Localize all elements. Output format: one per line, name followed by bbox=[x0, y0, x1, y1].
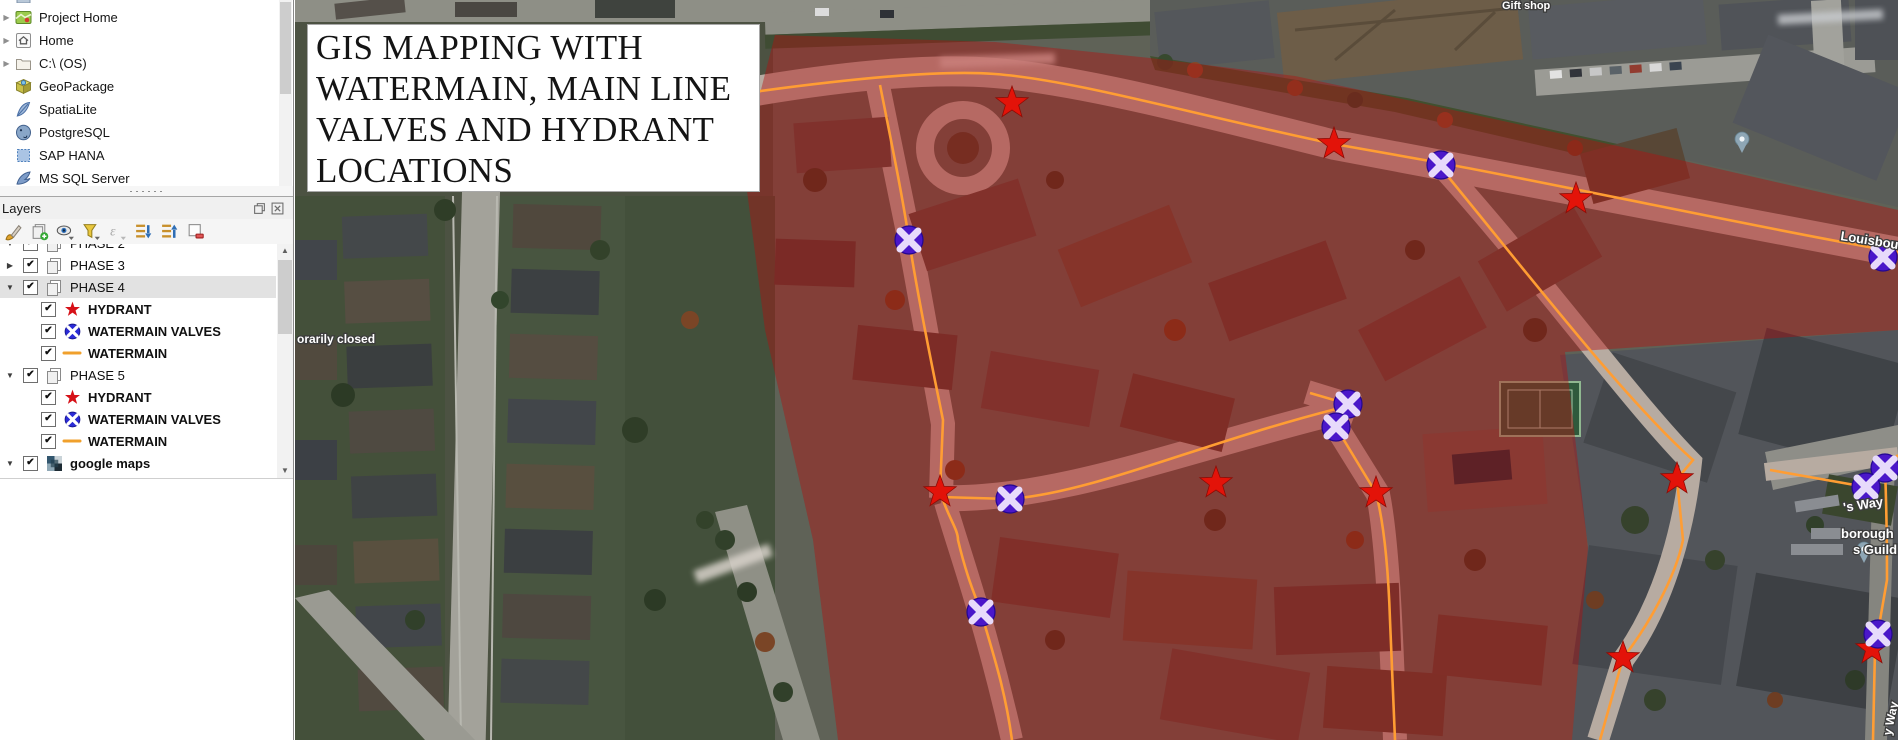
layer-label: WATERMAIN bbox=[88, 434, 167, 449]
float-panel-button[interactable] bbox=[253, 202, 266, 215]
layer-visibility-checkbox[interactable]: ✔ bbox=[23, 368, 38, 383]
street-label-s-guild: s Guild bbox=[1853, 542, 1897, 557]
panel-splitter-handle[interactable] bbox=[0, 186, 293, 196]
spatialite-icon bbox=[15, 101, 32, 118]
browser-item-home[interactable]: ▶Home bbox=[0, 29, 279, 52]
street-label-gift-shop: Gift shop bbox=[1502, 0, 1551, 12]
filter-legend-button[interactable] bbox=[80, 220, 103, 243]
layer-item-watermain[interactable]: ✔WATERMAIN bbox=[0, 342, 276, 364]
layer-label: google maps bbox=[70, 456, 150, 471]
layer-label: PHASE 2 bbox=[70, 244, 125, 251]
browser-item-label: SAP HANA bbox=[39, 148, 105, 163]
browser-panel: ▶Project Home▶Home▶C:\ (OS)GeoPackageSpa… bbox=[0, 0, 293, 196]
sap-hana-icon bbox=[15, 147, 32, 164]
layer-group-phase-4[interactable]: ▼✔PHASE 4 bbox=[0, 276, 276, 298]
browser-scrollbar-thumb[interactable] bbox=[280, 2, 291, 94]
browser-item-geopackage[interactable]: GeoPackage bbox=[0, 75, 279, 98]
hydrant-star-icon bbox=[61, 300, 83, 318]
layer-item-watermain-valves[interactable]: ✔WATERMAIN VALVES bbox=[0, 408, 276, 430]
qgis-window: ▶Project Home▶Home▶C:\ (OS)GeoPackageSpa… bbox=[0, 0, 1898, 740]
browser-item-label: Project Home bbox=[39, 10, 118, 25]
open-layer-styling-button[interactable] bbox=[2, 220, 25, 243]
tree-expander-icon[interactable]: ▼ bbox=[4, 371, 16, 380]
scroll-up-icon[interactable]: ▲ bbox=[277, 244, 293, 258]
layers-tree: ▼✔PHASE 2▶✔PHASE 3▼✔PHASE 4✔HYDRANT✔WATE… bbox=[0, 244, 276, 474]
layer-visibility-checkbox[interactable]: ✔ bbox=[41, 302, 56, 317]
browser-tree: ▶Project Home▶Home▶C:\ (OS)GeoPackageSpa… bbox=[0, 0, 279, 196]
map-canvas[interactable]: Gift shopLouisbourg's Wayboroughs Guildo… bbox=[295, 0, 1898, 740]
layer-label: PHASE 3 bbox=[70, 258, 125, 273]
layer-item-google-maps[interactable]: ▼✔google maps bbox=[0, 452, 276, 474]
project-home-icon bbox=[15, 9, 32, 26]
watermain-valve-marker bbox=[996, 485, 1024, 513]
expand-arrow-icon[interactable]: ▶ bbox=[0, 59, 13, 68]
layer-visibility-checkbox[interactable]: ✔ bbox=[41, 324, 56, 339]
layer-visibility-checkbox[interactable]: ✔ bbox=[23, 258, 38, 273]
watermain-line-icon bbox=[61, 432, 83, 450]
group-icon bbox=[43, 278, 65, 296]
expand-arrow-icon[interactable]: ▶ bbox=[0, 36, 13, 45]
filter-by-expression-button[interactable]: ε bbox=[106, 220, 129, 243]
collapse-all-button[interactable] bbox=[158, 220, 181, 243]
layers-panel-window-buttons bbox=[253, 202, 284, 215]
close-panel-button[interactable] bbox=[271, 202, 284, 215]
drive-folder-icon bbox=[15, 55, 32, 72]
tree-expander-icon[interactable]: ▶ bbox=[4, 261, 16, 270]
layers-tree-wrap: ▼✔PHASE 2▶✔PHASE 3▼✔PHASE 4✔HYDRANT✔WATE… bbox=[0, 244, 293, 479]
layer-group-phase-5[interactable]: ▼✔PHASE 5 bbox=[0, 364, 276, 386]
browser-item-label: SpatiaLite bbox=[39, 102, 97, 117]
geopackage-icon bbox=[15, 78, 32, 95]
tree-expander-icon[interactable]: ▼ bbox=[4, 283, 16, 292]
layer-visibility-checkbox[interactable]: ✔ bbox=[23, 456, 38, 471]
browser-item-label: MS SQL Server bbox=[39, 171, 130, 186]
left-dock: ▶Project Home▶Home▶C:\ (OS)GeoPackageSpa… bbox=[0, 0, 294, 740]
group-icon bbox=[43, 256, 65, 274]
layers-toolbar: ε bbox=[0, 219, 293, 244]
scroll-down-icon[interactable]: ▼ bbox=[277, 464, 293, 478]
ms-sql-server-icon bbox=[15, 170, 32, 187]
browser-item-sap-hana[interactable]: SAP HANA bbox=[0, 144, 279, 167]
group-icon bbox=[43, 244, 65, 252]
expand-arrow-icon[interactable]: ▶ bbox=[0, 13, 13, 22]
tree-expander-icon[interactable]: ▼ bbox=[4, 459, 16, 468]
watermain-valve-icon bbox=[61, 410, 83, 428]
clipped-item-icon bbox=[15, 0, 32, 3]
street-label-borough: borough bbox=[1841, 526, 1894, 541]
postgresql-icon bbox=[15, 124, 32, 141]
tree-expander-icon[interactable]: ▼ bbox=[4, 244, 16, 248]
watermain-line-icon bbox=[61, 344, 83, 362]
layer-label: PHASE 5 bbox=[70, 368, 125, 383]
watermain-valve-marker bbox=[1427, 151, 1455, 179]
browser-item-label: PostgreSQL bbox=[39, 125, 110, 140]
add-group-button[interactable] bbox=[28, 220, 51, 243]
splitter-dots-icon bbox=[128, 190, 166, 193]
watermain-valve-marker bbox=[967, 598, 995, 626]
layers-scrollbar[interactable]: ▲ ▼ bbox=[277, 244, 293, 478]
layer-visibility-checkbox[interactable]: ✔ bbox=[41, 434, 56, 449]
layer-label: HYDRANT bbox=[88, 390, 152, 405]
browser-item-project-home[interactable]: ▶Project Home bbox=[0, 6, 279, 29]
expand-all-button[interactable] bbox=[132, 220, 155, 243]
watermain-valve-marker bbox=[1322, 413, 1350, 441]
layers-panel: Layers ε ▼✔PHASE 2▶✔PHASE 3▼✔PHASE 4✔HYD… bbox=[0, 196, 293, 479]
layer-item-watermain-valves[interactable]: ✔WATERMAIN VALVES bbox=[0, 320, 276, 342]
dock-empty-area bbox=[0, 479, 293, 740]
layer-visibility-checkbox[interactable]: ✔ bbox=[41, 390, 56, 405]
layer-visibility-checkbox[interactable]: ✔ bbox=[23, 280, 38, 295]
home-icon bbox=[15, 32, 32, 49]
group-icon bbox=[43, 366, 65, 384]
browser-item-spatialite[interactable]: SpatiaLite bbox=[0, 98, 279, 121]
layer-label: WATERMAIN VALVES bbox=[88, 412, 221, 427]
layers-panel-header: Layers bbox=[0, 196, 293, 219]
layer-label: HYDRANT bbox=[88, 302, 152, 317]
watermain-valve-icon bbox=[61, 322, 83, 340]
layer-item-watermain[interactable]: ✔WATERMAIN bbox=[0, 430, 276, 452]
layer-label: WATERMAIN bbox=[88, 346, 167, 361]
browser-item-label: GeoPackage bbox=[39, 79, 114, 94]
layer-visibility-checkbox[interactable]: ✔ bbox=[23, 244, 38, 251]
browser-item-c-os[interactable]: ▶C:\ (OS) bbox=[0, 52, 279, 75]
watermain-valve-marker bbox=[1864, 620, 1892, 648]
remove-layer-button[interactable] bbox=[184, 220, 207, 243]
browser-item-label: C:\ (OS) bbox=[39, 56, 87, 71]
hydrant-star-icon bbox=[61, 388, 83, 406]
layer-group-phase-3[interactable]: ▶✔PHASE 3 bbox=[0, 254, 276, 276]
layer-label: WATERMAIN VALVES bbox=[88, 324, 221, 339]
browser-scrollbar[interactable] bbox=[279, 0, 292, 186]
map-title-overlay: GIS MAPPING WITH WATERMAIN, MAIN LINE VA… bbox=[307, 24, 760, 192]
layer-group-phase-2[interactable]: ▼✔PHASE 2 bbox=[0, 244, 276, 254]
layers-scrollbar-thumb[interactable] bbox=[278, 260, 292, 334]
layer-visibility-checkbox[interactable]: ✔ bbox=[41, 346, 56, 361]
browser-item-label: Home bbox=[39, 33, 74, 48]
layers-panel-title: Layers bbox=[2, 201, 41, 216]
street-label-orarily-closed: orarily closed bbox=[297, 332, 375, 346]
browser-item-postgresql[interactable]: PostgreSQL bbox=[0, 121, 279, 144]
watermain-valve-marker bbox=[895, 226, 923, 254]
layer-item-hydrant[interactable]: ✔HYDRANT bbox=[0, 386, 276, 408]
basemap-tiles-icon bbox=[43, 454, 65, 472]
layer-label: PHASE 4 bbox=[70, 280, 125, 295]
layer-item-hydrant[interactable]: ✔HYDRANT bbox=[0, 298, 276, 320]
svg-text:ε: ε bbox=[110, 224, 116, 239]
manage-map-themes-button[interactable] bbox=[54, 220, 77, 243]
layer-visibility-checkbox[interactable]: ✔ bbox=[41, 412, 56, 427]
